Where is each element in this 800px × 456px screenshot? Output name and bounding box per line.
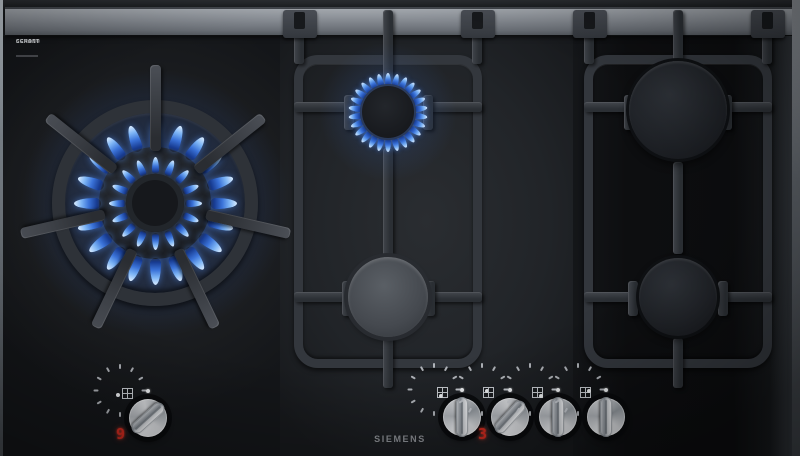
knob-off-dot	[556, 388, 560, 392]
grate-prong	[429, 102, 482, 112]
burner-cap	[126, 174, 184, 232]
grate-foot	[573, 10, 607, 38]
flame-lg-element	[210, 198, 237, 209]
spoke-element	[150, 65, 161, 151]
siemens-logo: SIEMENS	[0, 434, 800, 444]
flame-md-element	[109, 200, 126, 207]
glass-edge-left	[0, 0, 3, 456]
knob-grip	[552, 397, 564, 437]
hob-top-edge	[0, 0, 800, 7]
grate-prong	[431, 292, 482, 302]
grate-prong	[584, 292, 632, 302]
tick-element	[552, 388, 557, 390]
position-dot	[439, 394, 443, 398]
burner-position-icon	[437, 387, 448, 398]
grate-prong	[673, 338, 683, 388]
burner-cap	[629, 61, 727, 159]
flame-md-element	[185, 200, 202, 207]
burner-position-icon	[580, 387, 591, 398]
grate-prong	[673, 162, 683, 254]
flame-lg-element	[150, 258, 161, 285]
grate-prong	[383, 332, 393, 388]
position-dot	[116, 393, 120, 397]
burner-cap	[348, 257, 428, 337]
position-dot	[587, 389, 591, 393]
grate-prong	[294, 292, 345, 302]
badge-subline	[16, 55, 38, 57]
knob-grip	[600, 397, 612, 437]
burner-position-icon	[483, 387, 494, 398]
tick-element	[94, 389, 99, 391]
knob-off-dot	[146, 389, 150, 393]
grate-foot	[461, 10, 495, 38]
grate-prong-tip	[718, 281, 728, 316]
knob-off-dot	[604, 388, 608, 392]
grate-prong	[383, 148, 393, 258]
knob-grip	[456, 397, 468, 437]
flame-lg-element	[74, 198, 101, 209]
tick-element	[481, 411, 483, 416]
tick-element	[529, 411, 531, 416]
glass-sheen-right	[770, 36, 792, 456]
tick-element	[119, 364, 121, 369]
knob-off-dot	[460, 388, 464, 392]
position-dot	[485, 389, 489, 393]
grate-prong	[724, 292, 772, 302]
grate-foot	[283, 10, 317, 38]
grate-prong-tip	[628, 281, 638, 316]
tick-element	[577, 363, 579, 368]
tick-element	[456, 388, 461, 390]
tick-element	[481, 363, 483, 368]
tick-element	[529, 363, 531, 368]
tick-element	[119, 412, 121, 417]
flame-md-element	[152, 233, 159, 250]
grate-foot	[751, 10, 785, 38]
tick-element	[433, 363, 435, 368]
gas-hob: SCHOTT CERAN®	[0, 0, 800, 456]
burner-cap	[639, 258, 717, 336]
tick-element	[577, 411, 579, 416]
burner-position-icon	[532, 387, 543, 398]
tick-element	[504, 388, 509, 390]
burner-cap	[360, 84, 416, 140]
grate-prong	[728, 102, 772, 112]
badge-line2: CERAN®	[16, 39, 40, 45]
position-dot	[539, 394, 543, 398]
grate-prong	[584, 102, 628, 112]
glass-edge-right	[792, 0, 800, 456]
tick-element	[408, 388, 413, 390]
knob-off-dot	[508, 388, 512, 392]
burner-position-icon	[122, 388, 133, 399]
grate-prong	[294, 102, 347, 112]
tick-element	[433, 411, 435, 416]
